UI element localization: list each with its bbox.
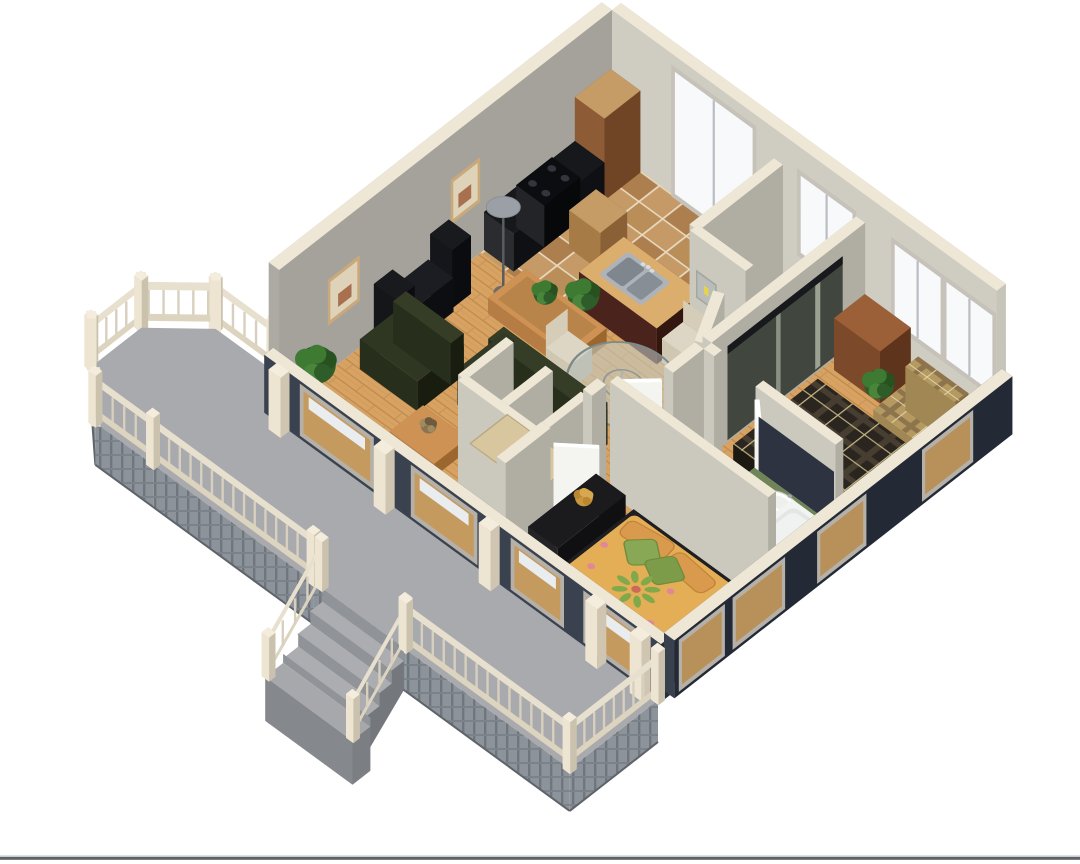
porch-pilaster-1 — [269, 362, 290, 438]
porch-pilaster-4 — [585, 594, 606, 670]
closet-mirror-streak-a — [815, 276, 820, 370]
page-bottom-rule-light — [0, 855, 1080, 857]
porch-pilaster-2 — [374, 439, 395, 515]
floor-plan-render-page — [0, 0, 1080, 864]
closet-mirror-streak-b — [776, 307, 781, 401]
page-bottom-rule-dark — [0, 857, 1080, 860]
porch-pilaster-3 — [479, 516, 500, 592]
gazebo-railing-far-3 — [136, 272, 221, 333]
house-3d-floor-plan — [0, 0, 1080, 864]
